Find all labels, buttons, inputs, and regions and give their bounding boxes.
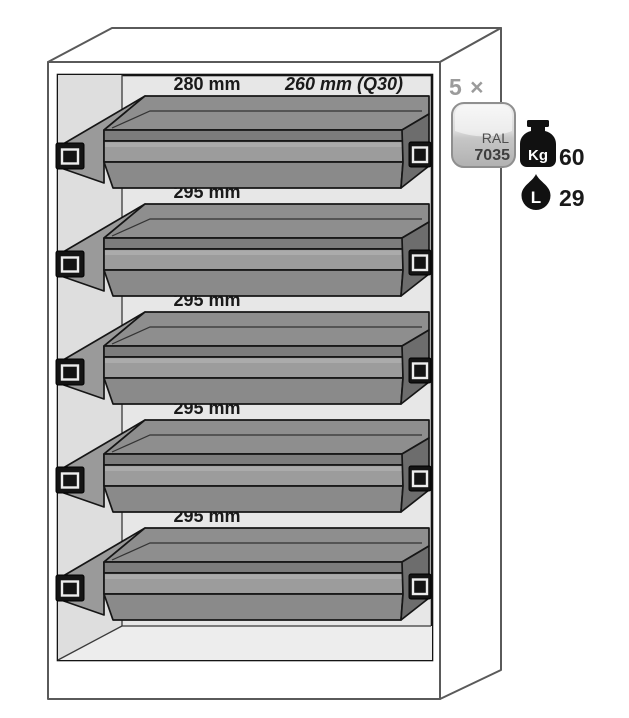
liter-drop-icon: L	[522, 174, 551, 210]
cabinet-diagram: 280 mm 260 mm (Q30) 295 mm 295 mm 295 mm…	[0, 0, 629, 718]
tray-1-depth-label: 260 mm (Q30)	[284, 74, 403, 94]
cabinet-spec-illustration: 280 mm 260 mm (Q30) 295 mm 295 mm 295 mm…	[0, 0, 629, 718]
ral-badge-line2: 7035	[474, 147, 510, 164]
weight-kg-icon: Kg	[520, 120, 556, 167]
tray-1-width-label: 280 mm	[173, 74, 240, 94]
load-capacity: Kg 60	[520, 120, 585, 170]
sump-volume: L 29	[522, 174, 585, 211]
cabinet-top-face	[48, 28, 501, 62]
load-capacity-value: 60	[559, 144, 585, 170]
interior-floor	[58, 626, 432, 660]
unit-count-label: 5 ×	[449, 74, 485, 100]
sump-volume-value: 29	[559, 185, 585, 211]
volume-unit-text: L	[531, 188, 541, 207]
ral-badge: RAL 7035	[452, 103, 515, 167]
weight-unit-text: Kg	[528, 147, 548, 164]
ral-badge-line1: RAL	[482, 130, 509, 146]
